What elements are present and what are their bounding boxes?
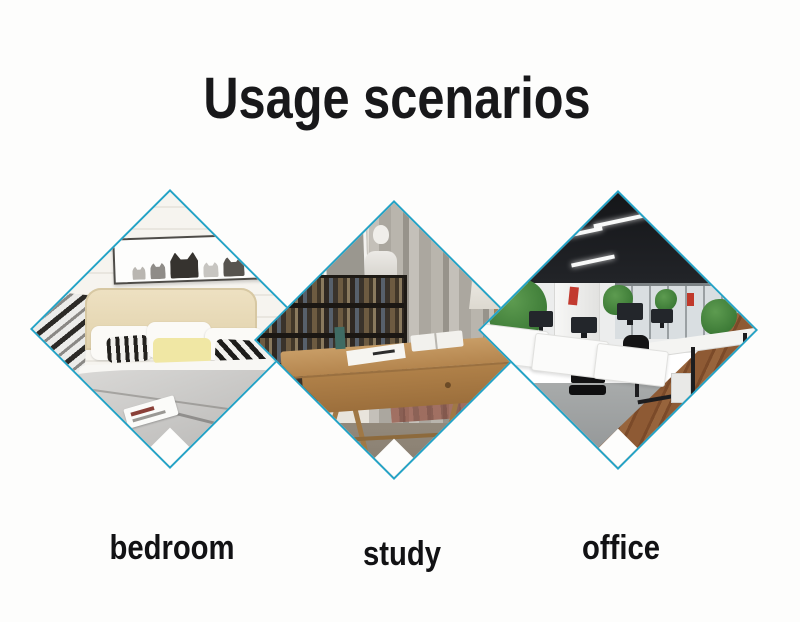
label-bedroom: bedroom [109,531,234,565]
candlesticks [303,243,319,281]
desk-trestle-leg [470,398,492,461]
monitor [571,317,597,333]
desktop-tower [671,373,691,403]
label-study: study [363,537,441,571]
office-photo [478,190,758,470]
desk-leg [691,347,695,393]
office-ceiling [478,190,758,283]
standing-book [334,327,345,349]
dog-portrait-icon [150,262,166,280]
usage-scenarios-banner: Usage scenarios [0,0,800,622]
label-office: office [582,531,660,565]
bookshelf-lower [254,375,313,471]
page-title: Usage scenarios [203,70,590,128]
dog-portrait-icon [132,265,145,279]
ceiling-light-strip [651,203,705,218]
dog-portrait-icon [223,256,245,277]
desk-leg [743,333,747,373]
office-photo-diamond [478,190,758,470]
monitor [529,311,553,327]
striped-pillow [106,335,150,364]
monitor [651,309,673,323]
dog-portrait-icon [203,261,219,278]
ceiling-light-strip [495,243,549,258]
dog-portrait-icon [170,252,199,279]
bedroom-wall-art [112,233,264,284]
red-wall-sign [568,287,579,306]
ceiling-light-strip [683,229,743,245]
plaster-bust [365,225,397,279]
monitor [617,303,643,320]
red-wall-sign [687,293,694,306]
